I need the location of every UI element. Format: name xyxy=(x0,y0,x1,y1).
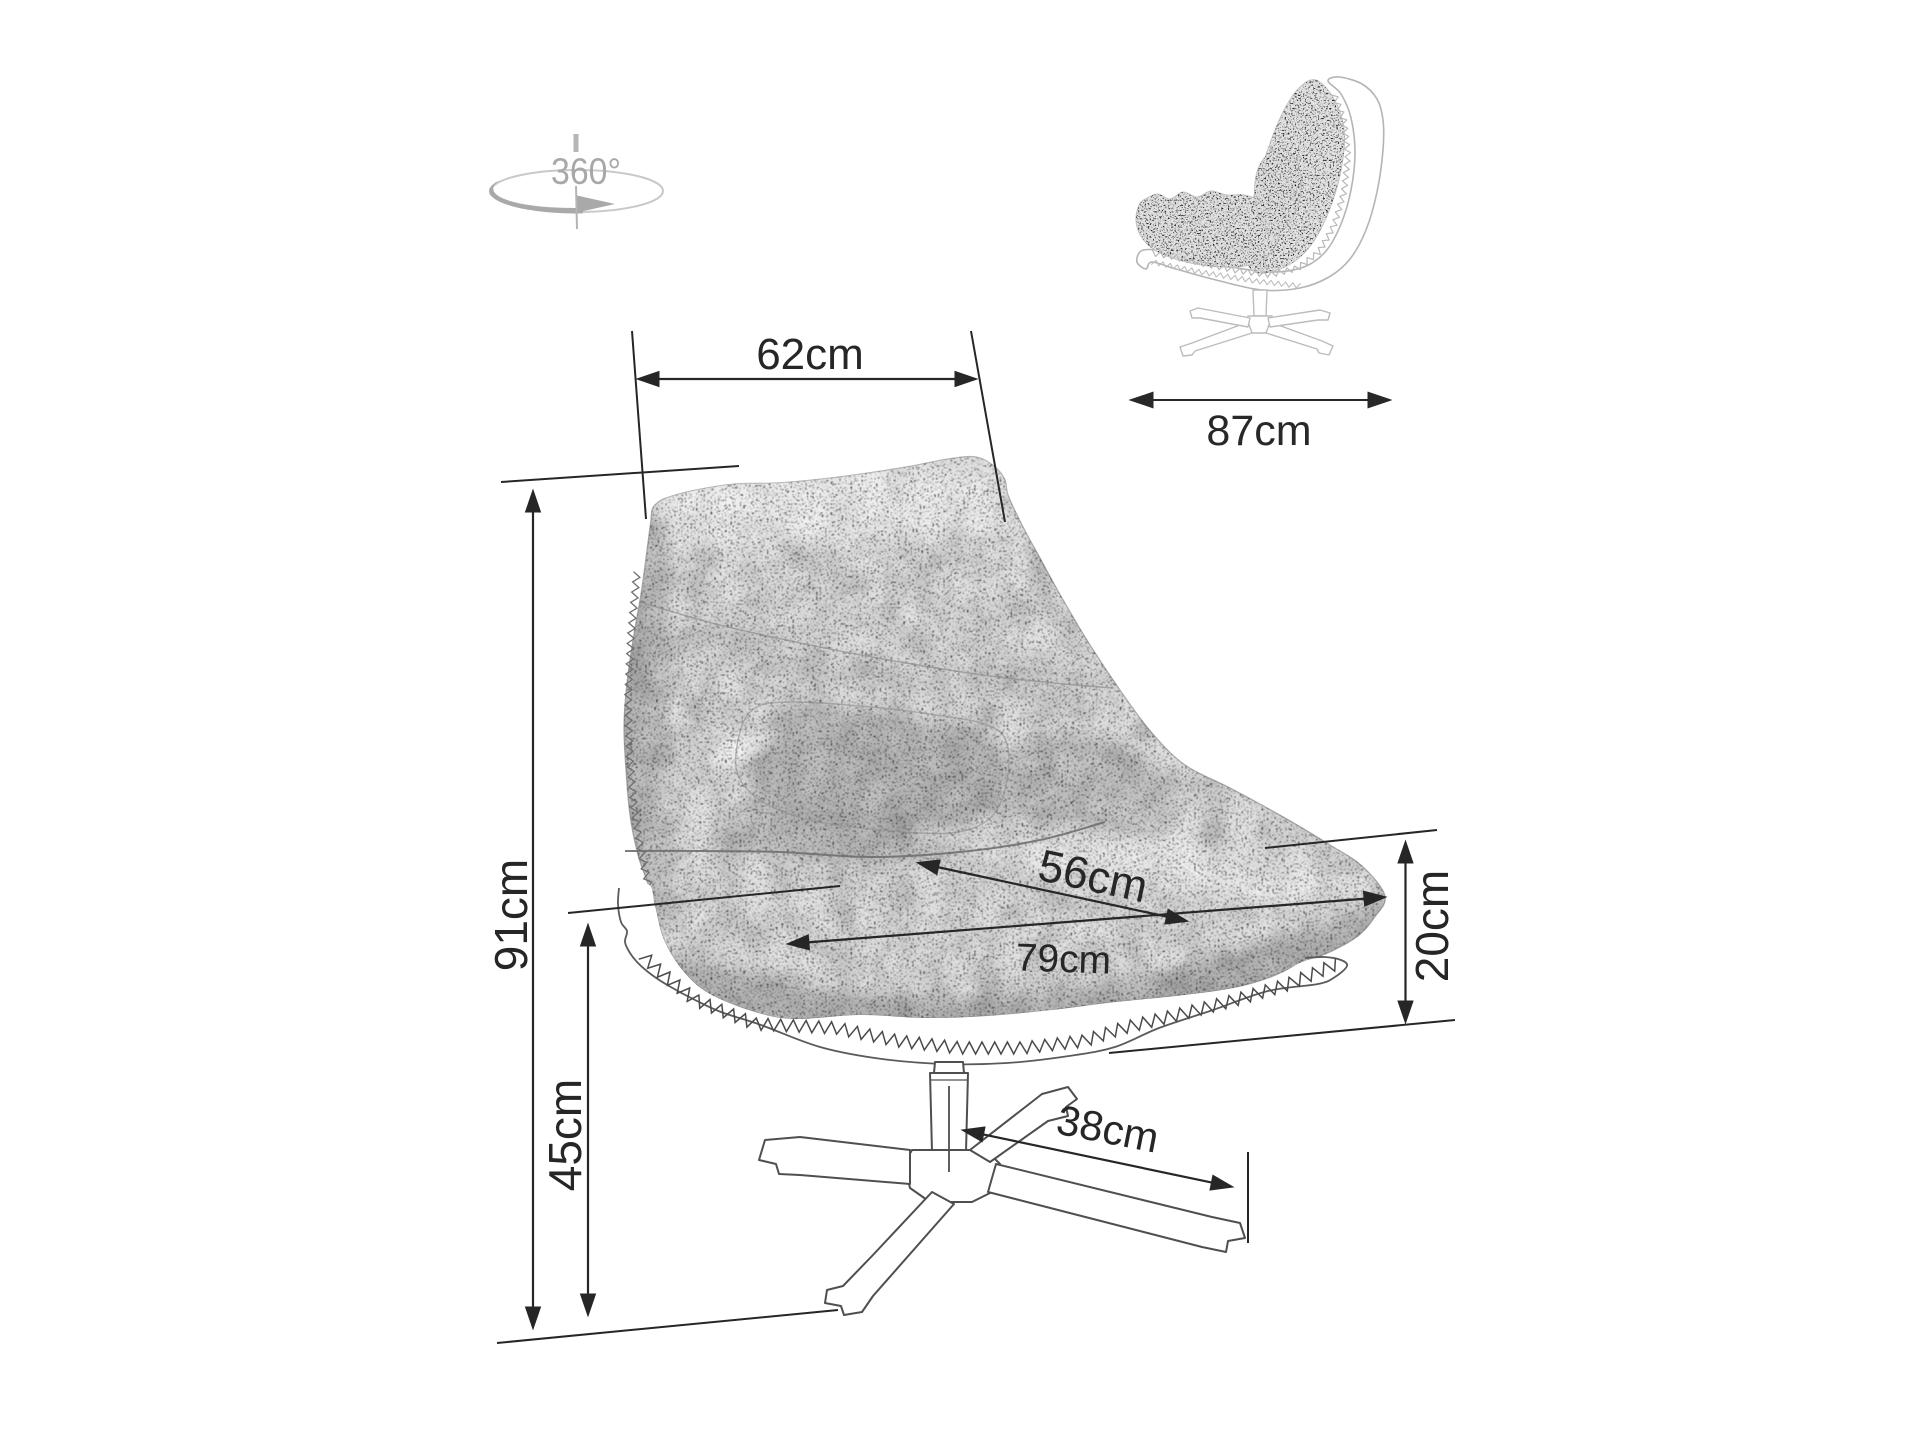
svg-text:79cm: 79cm xyxy=(1015,936,1112,982)
svg-text:45cm: 45cm xyxy=(539,1079,591,1191)
svg-text:87cm: 87cm xyxy=(1206,407,1311,455)
svg-text:91cm: 91cm xyxy=(485,859,537,971)
svg-text:360°: 360° xyxy=(551,151,621,192)
svg-text:20cm: 20cm xyxy=(1406,870,1458,982)
svg-text:62cm: 62cm xyxy=(756,330,864,379)
